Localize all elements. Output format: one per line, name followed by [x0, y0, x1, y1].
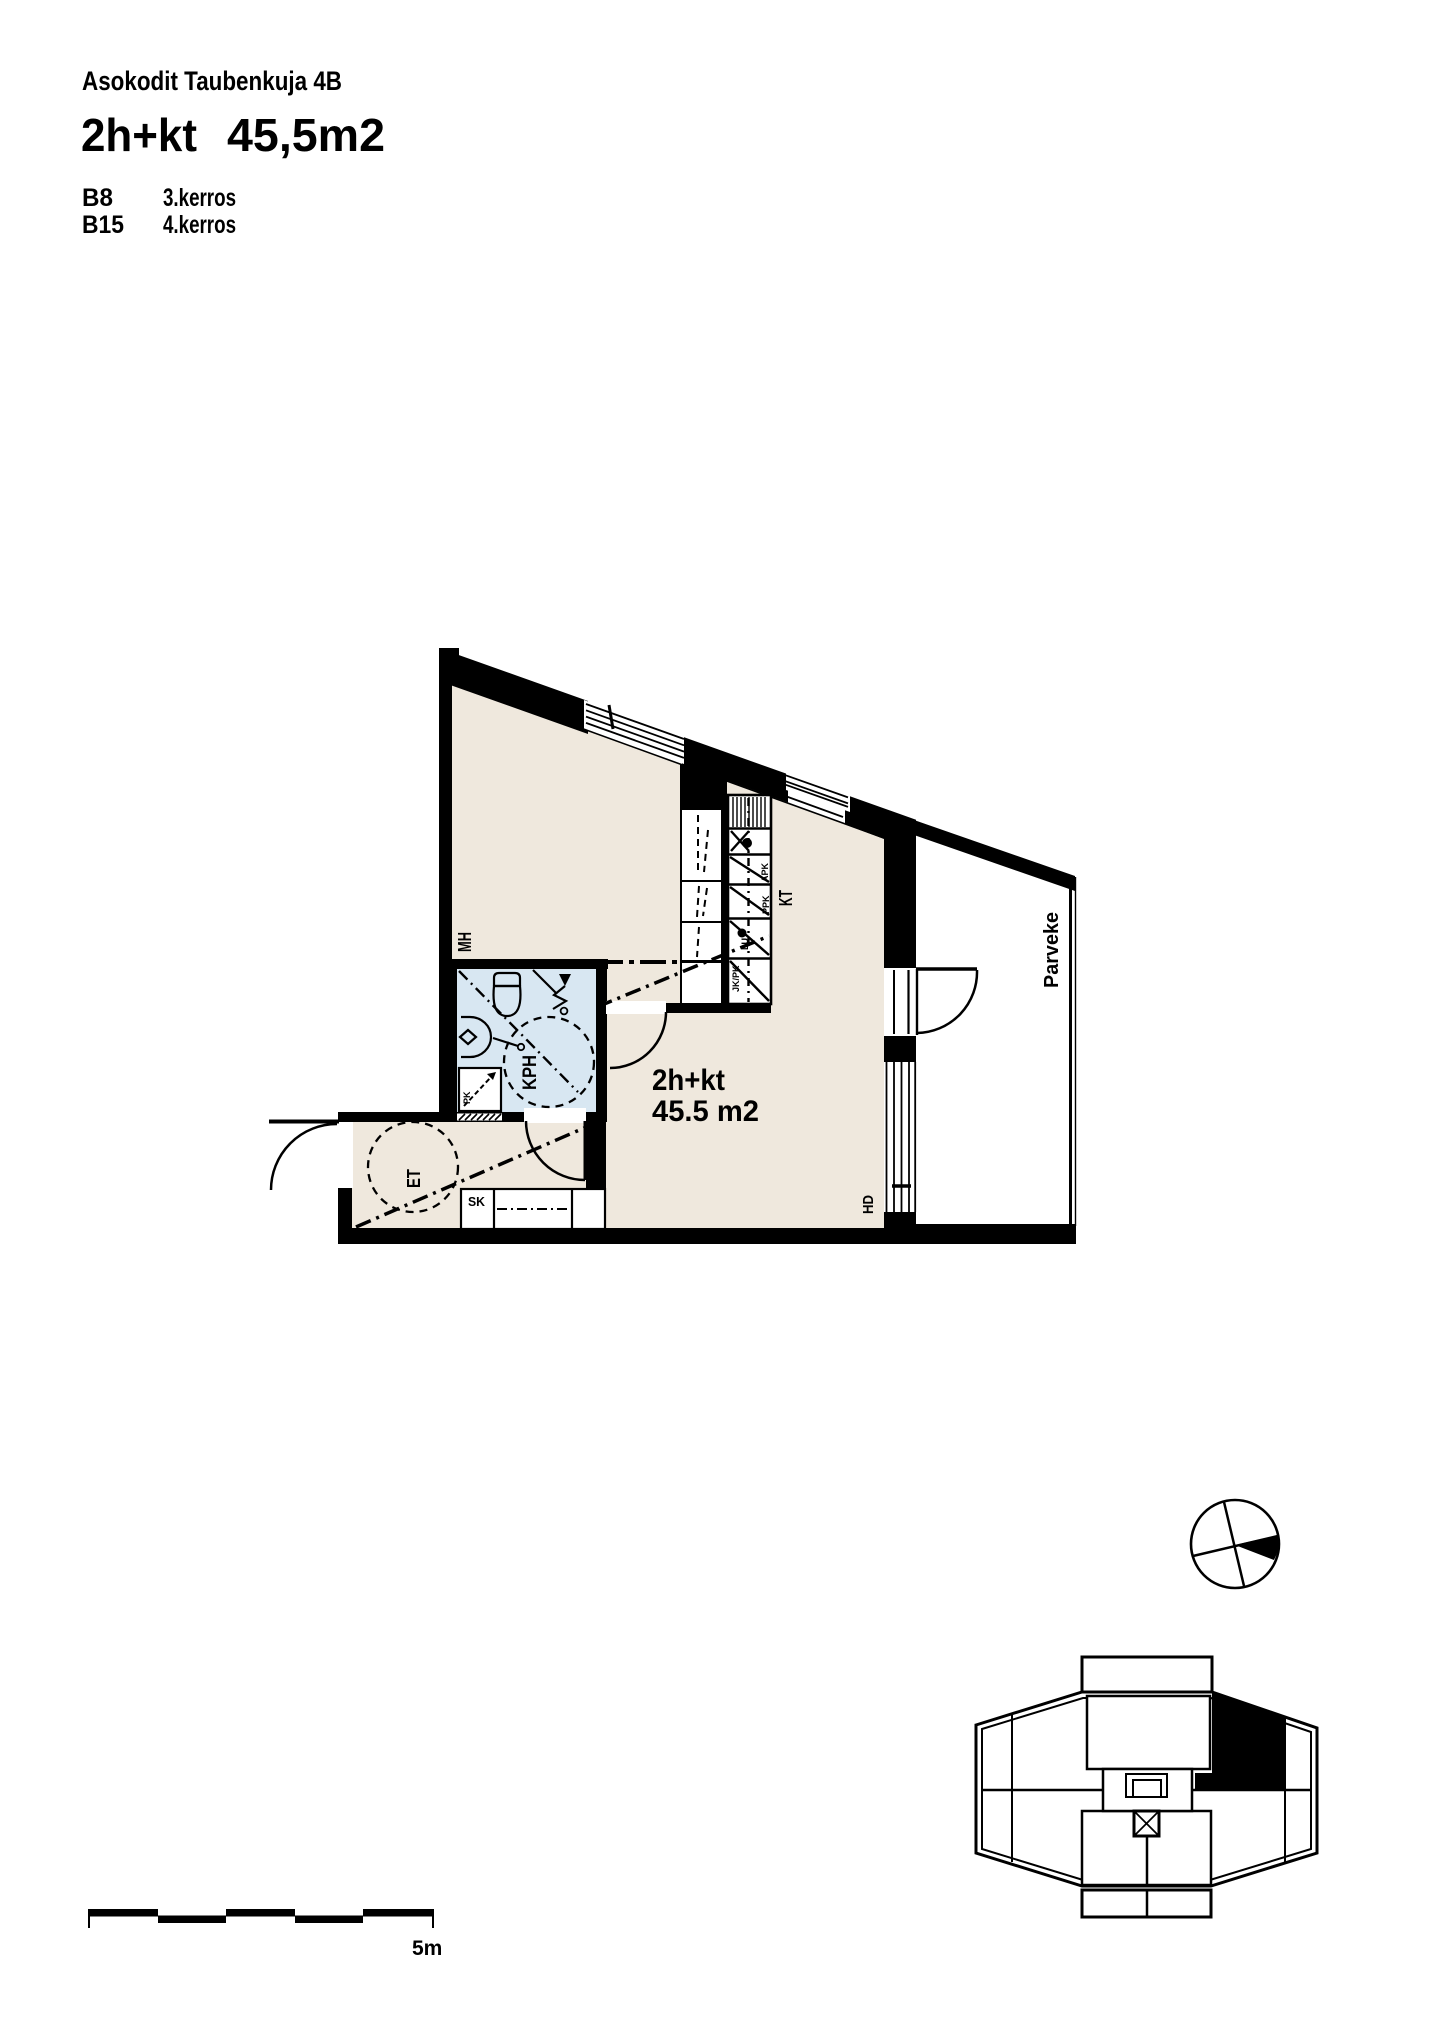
svg-text:MH: MH [455, 932, 475, 952]
svg-text:PPK: PPK [761, 895, 771, 914]
svg-text:5m: 5m [412, 1937, 442, 1960]
svg-text:2h+kt: 2h+kt [81, 109, 197, 161]
svg-text:45.5 m2: 45.5 m2 [652, 1095, 759, 1128]
svg-text:2h+kt: 2h+kt [652, 1064, 725, 1097]
svg-text:B15: B15 [82, 211, 124, 239]
svg-text:KPH: KPH [520, 1055, 541, 1090]
svg-text:HD: HD [860, 1195, 877, 1214]
svg-text:KT: KT [776, 890, 796, 906]
svg-text:3.kerros: 3.kerros [163, 184, 236, 212]
svg-text:ET: ET [404, 1169, 424, 1188]
svg-text:SK: SK [468, 1194, 486, 1209]
svg-text:4.kerros: 4.kerros [163, 211, 236, 239]
svg-text:B8: B8 [82, 184, 113, 212]
svg-text:Asokodit Taubenkuja 4B: Asokodit Taubenkuja 4B [82, 66, 342, 96]
svg-text:PK: PK [462, 1091, 472, 1104]
svg-text:45,5m2: 45,5m2 [227, 109, 385, 161]
svg-text:APK: APK [760, 862, 770, 882]
svg-text:JK/PK: JK/PK [731, 965, 741, 992]
svg-text:Parveke: Parveke [1041, 912, 1063, 988]
